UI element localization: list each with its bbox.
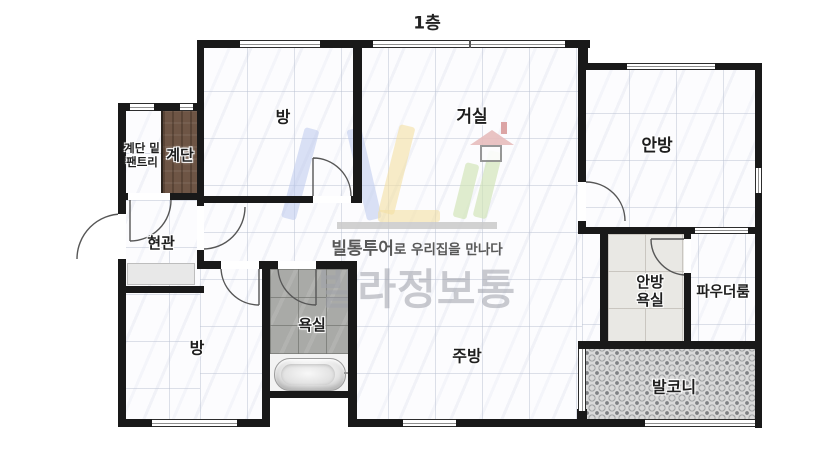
wall-entrance-bottom: [118, 286, 204, 293]
window-bedroom-bottom: [152, 419, 237, 427]
floor-title: 1층: [413, 9, 440, 34]
room-label-bedroom-top: 방: [276, 107, 291, 126]
door-arc-bathroom: [278, 267, 316, 305]
door-arc-bedroom-top: [313, 158, 351, 196]
room-label-pantry: 계단 밑 팬트리: [124, 142, 160, 170]
window-kitchen-balcony: [578, 349, 586, 411]
floor-plan: 빌통투어로 우리집을 만나다 빌라정보통: [0, 0, 840, 472]
door-arc-master-bathroom: [651, 239, 687, 275]
door-gap-bathroom: [278, 261, 316, 269]
wall-bathroom-left: [262, 261, 270, 427]
door-arc-hall: [203, 207, 245, 249]
room-label-bedroom-bottom: 방: [190, 338, 205, 357]
window-master-bedroom-right: [755, 168, 762, 193]
door-gap-pantry: [128, 193, 170, 200]
wall-kitchen-right: [600, 227, 608, 349]
window-pantry-1: [130, 103, 154, 111]
door-gap-bedroom-bottom: [221, 261, 259, 269]
wall-bedroom-top-right: [353, 44, 362, 203]
room-label-stairs: 계단: [166, 146, 194, 164]
window-kitchen: [403, 419, 456, 427]
wall-right: [755, 63, 762, 428]
door-gap-master-bedroom: [578, 182, 586, 221]
wall-bathroom-bottom: [262, 391, 357, 398]
wall-balcony-post: [577, 409, 587, 427]
window-balcony-bottom: [645, 419, 755, 427]
window-bedroom-top: [240, 40, 320, 48]
door-arc-bedroom-bottom: [221, 267, 259, 305]
room-label-bathroom: 욕실: [298, 316, 326, 334]
wall-bathroom-right: [348, 261, 357, 427]
door-arcs: [0, 0, 840, 472]
window-living-mullion: [469, 40, 471, 48]
door-gap-master-bathroom: [684, 239, 691, 273]
room-label-entrance: 현관: [147, 234, 175, 252]
room-label-kitchen: 주방: [452, 346, 481, 365]
window-pantry-2: [180, 103, 193, 111]
room-label-master-bathroom: 안방 욕실: [636, 273, 664, 309]
room-label-balcony: 발코니: [652, 377, 696, 396]
window-master-bedroom-top: [627, 63, 715, 70]
room-label-living: 거실: [456, 107, 487, 127]
room-label-master-bedroom: 안방: [641, 136, 672, 156]
door-gap-bedroom-top: [313, 196, 351, 203]
room-label-powder-room: 파우더룸: [696, 284, 749, 301]
wall-bedroom-top-left: [197, 44, 204, 203]
window-powder-room: [695, 227, 748, 234]
door-arc-entrance: [77, 214, 122, 259]
door-gap-entrance: [118, 214, 126, 259]
door-gap-hall: [197, 206, 204, 250]
door-arc-master-bedroom: [586, 182, 625, 221]
